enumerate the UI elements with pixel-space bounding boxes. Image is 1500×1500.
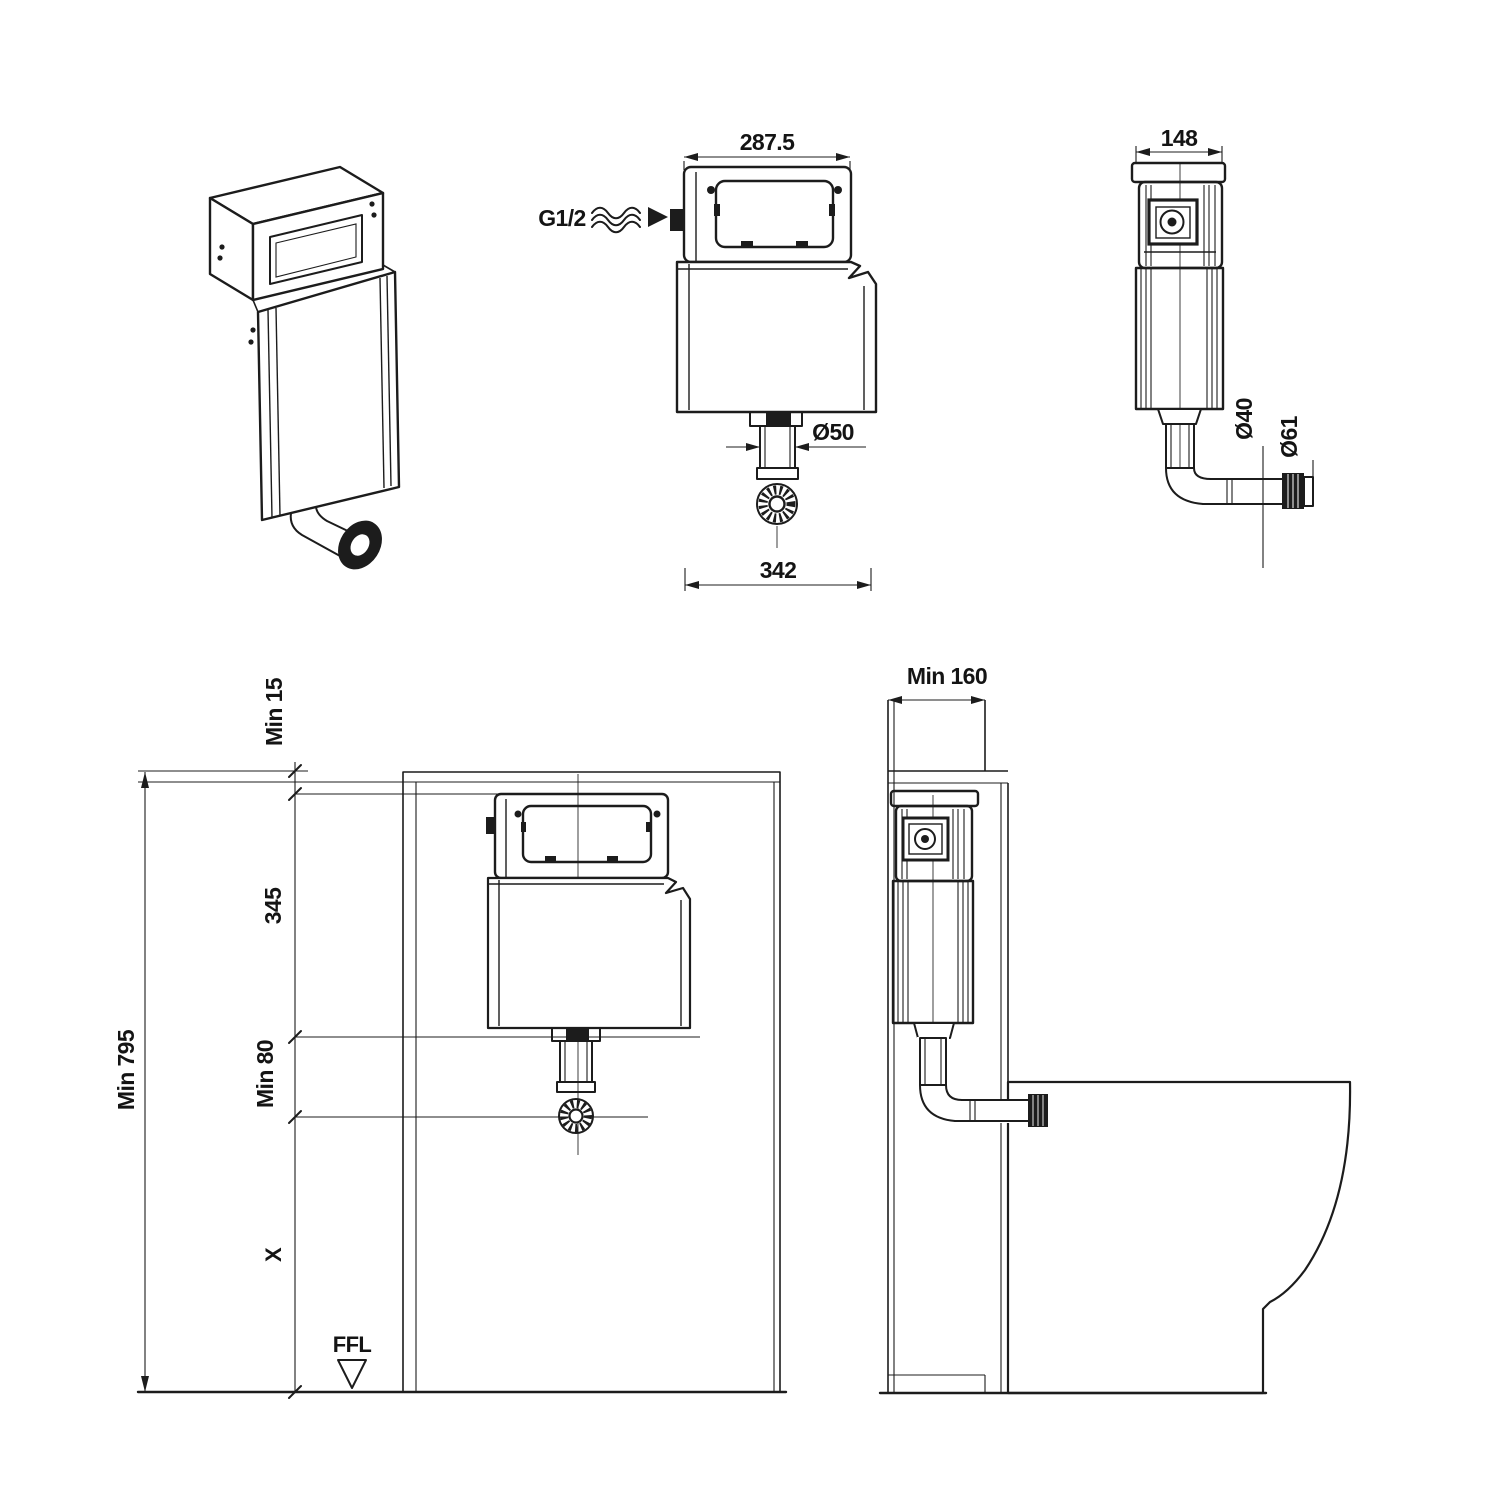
install-side-top-cap	[891, 791, 978, 806]
toilet-pan	[1008, 1082, 1350, 1393]
front-inlet-boss	[670, 209, 684, 231]
dim-cavity-depth-label: Min 160	[907, 663, 987, 689]
front-tank	[677, 262, 876, 412]
dim-pipe-diameter-label: Ø40	[1231, 398, 1257, 440]
install-inlet-boss	[486, 817, 495, 834]
dim-side-width-label: 148	[1161, 125, 1198, 151]
installation-side-view: Min 160	[880, 663, 1350, 1393]
installation-front-view: Min 15 345 Min 80 Min 795 X	[113, 677, 786, 1398]
dim-outlet-drop-label: Min 80	[252, 1040, 278, 1108]
technical-drawing-sheet: 287.5 Ø50	[0, 0, 1500, 1500]
install-front-tank	[488, 878, 690, 1028]
dimension-top-width: 287.5	[684, 129, 850, 170]
side-body	[1136, 268, 1223, 409]
front-access-opening	[716, 181, 833, 247]
front-view: 287.5 Ø50	[538, 129, 876, 591]
dim-connector-diameter-label: Ø61	[1276, 415, 1302, 457]
dimension-connector-diameter: Ø61	[1276, 415, 1313, 477]
dim-bottom-width-label: 342	[760, 557, 797, 583]
drawing-svg: 287.5 Ø50	[0, 0, 1500, 1500]
side-view: 148	[1132, 125, 1313, 568]
dim-outlet-diameter-label: Ø50	[812, 419, 854, 445]
dimension-flush-pipe-diameter: Ø40	[1231, 398, 1263, 568]
install-front-access-opening	[523, 806, 651, 862]
dimension-bottom-width: 342	[685, 557, 871, 591]
dim-top-width-label: 287.5	[740, 129, 795, 155]
ffl-datum-icon	[338, 1360, 366, 1388]
inlet-arrow-icon	[648, 207, 668, 227]
dimension-cavity-depth: Min 160	[888, 663, 987, 704]
inlet-thread-label: G1/2	[538, 205, 585, 231]
water-wave-icon	[592, 208, 640, 219]
ffl-label: FFL	[333, 1332, 372, 1357]
dim-top-clearance-label: Min 15	[261, 677, 287, 746]
dim-cistern-height-label: 345	[260, 887, 286, 924]
iso-flush-pipe	[291, 513, 340, 556]
isometric-view	[210, 167, 399, 578]
dimension-side-width: 148	[1136, 125, 1222, 162]
side-top-cap	[1132, 163, 1225, 182]
dim-overall-height-label: Min 795	[113, 1029, 139, 1110]
side-reducer	[1158, 409, 1201, 424]
inlet-callout: G1/2	[538, 205, 668, 232]
dim-pan-connection-label: X	[261, 1247, 286, 1262]
